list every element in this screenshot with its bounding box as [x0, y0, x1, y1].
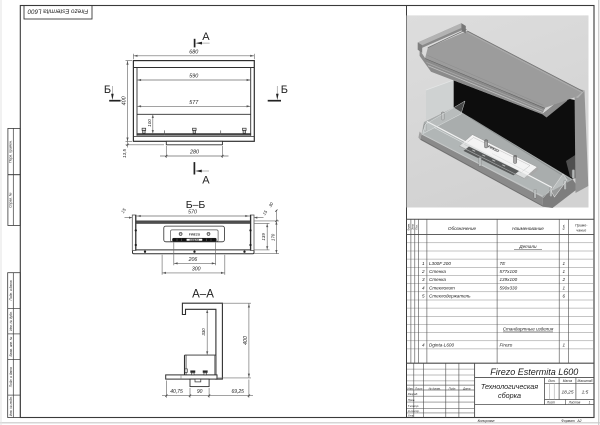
svg-text:30: 30 [268, 201, 275, 208]
svg-text:400: 400 [122, 96, 128, 105]
svg-text:2: 2 [421, 269, 425, 274]
svg-text:206: 206 [188, 257, 198, 263]
svg-text:Б: Б [281, 84, 288, 96]
svg-text:6: 6 [563, 294, 566, 299]
svg-text:680: 680 [189, 50, 198, 56]
svg-text:Дата: Дата [462, 386, 471, 390]
svg-text:FIREZO: FIREZO [189, 232, 201, 236]
svg-text:Утв.: Утв. [408, 414, 415, 418]
svg-text:Инв. № подл.: Инв. № подл. [9, 396, 13, 416]
svg-text:Обозначение: Обозначение [448, 226, 477, 231]
svg-text:15: 15 [262, 209, 269, 216]
svg-text:Стенка: Стенка [429, 277, 446, 282]
svg-text:Справ. №: Справ. № [9, 192, 13, 208]
svg-text:Firezo: Firezo [500, 343, 513, 348]
svg-text:Форм.: Форм. [407, 223, 411, 231]
svg-text:330: 330 [201, 328, 206, 336]
svg-text:18,25: 18,25 [561, 390, 573, 396]
svg-text:3: 3 [422, 277, 425, 282]
svg-text:Лит.: Лит. [547, 379, 556, 383]
svg-text:1: 1 [563, 261, 566, 266]
svg-text:Лист: Лист [546, 400, 556, 404]
svg-text:5: 5 [422, 294, 425, 299]
svg-text:Стеклодержатель: Стеклодержатель [429, 294, 471, 299]
svg-text:90: 90 [197, 389, 203, 395]
svg-text:Подп.: Подп. [449, 386, 457, 390]
svg-text:1: 1 [563, 269, 566, 274]
svg-text:Firezo Estermita L600: Firezo Estermita L600 [490, 367, 578, 377]
svg-text:чание: чание [576, 229, 586, 233]
svg-text:100: 100 [147, 119, 152, 127]
svg-text:Разраб.: Разраб. [408, 392, 418, 396]
svg-text:40,75: 40,75 [170, 389, 183, 395]
svg-text:15: 15 [120, 207, 127, 214]
svg-text:570: 570 [188, 210, 197, 216]
svg-text:69,25: 69,25 [231, 389, 244, 395]
svg-text:Подп. и дата: Подп. и дата [9, 367, 13, 387]
svg-text:А–А: А–А [192, 289, 214, 301]
svg-text:590: 590 [189, 74, 198, 80]
svg-text:Изм.: Изм. [407, 386, 413, 390]
svg-text:1: 1 [589, 400, 591, 404]
svg-text:ТЕ: ТЕ [500, 261, 507, 266]
svg-text:Пров.: Пров. [408, 398, 416, 402]
svg-text:139х100: 139х100 [500, 277, 518, 282]
svg-text:Копировал: Копировал [478, 419, 495, 423]
svg-text:Перв. примен.: Перв. примен. [9, 140, 13, 163]
svg-text:Подп. и дата: Подп. и дата [9, 280, 13, 300]
svg-text:Стеклолит: Стеклолит [429, 285, 455, 290]
svg-text:139: 139 [261, 233, 266, 241]
svg-text:Взам. инв. №: Взам. инв. № [9, 336, 13, 356]
svg-text:1:5: 1:5 [582, 390, 589, 396]
svg-text:Лист: Лист [414, 386, 423, 390]
svg-text:577: 577 [189, 100, 199, 106]
svg-text:170: 170 [270, 233, 275, 241]
svg-text:280: 280 [189, 150, 199, 156]
svg-text:Формат: Формат [561, 419, 575, 423]
svg-text:А2: А2 [576, 419, 581, 423]
svg-text:Масштаб: Масштаб [578, 379, 593, 383]
svg-text:L300F 200: L300F 200 [429, 261, 451, 266]
svg-text:Стенка: Стенка [429, 269, 446, 274]
svg-text:Масса: Масса [563, 379, 573, 383]
svg-text:№ докум.: № докум. [429, 386, 442, 390]
svg-text:577х100: 577х100 [500, 269, 518, 274]
svg-text:FIREZO: FIREZO [190, 238, 200, 242]
svg-text:Листов: Листов [568, 400, 581, 404]
svg-text:4: 4 [422, 285, 425, 290]
svg-text:Технологическая: Технологическая [481, 382, 538, 391]
svg-text:Зона: Зона [410, 223, 414, 229]
svg-text:Детали: Детали [518, 244, 537, 249]
svg-text:А: А [202, 31, 210, 43]
svg-text:Кол.: Кол. [561, 224, 565, 230]
svg-text:Поз.: Поз. [414, 224, 418, 229]
svg-text:Т.контр.: Т.контр. [408, 404, 420, 408]
svg-text:1: 1 [563, 343, 566, 348]
svg-text:1: 1 [563, 285, 566, 290]
svg-text:Dginta-L600: Dginta-L600 [429, 343, 454, 348]
svg-text:Б: Б [104, 84, 111, 96]
svg-text:Firezo Estermita L600: Firezo Estermita L600 [27, 8, 88, 15]
svg-text:4: 4 [422, 343, 425, 348]
svg-text:Наименование: Наименование [512, 226, 544, 231]
svg-text:590х330: 590х330 [500, 285, 518, 290]
svg-text:Инв. № дубл.: Инв. № дубл. [9, 311, 13, 331]
svg-text:2: 2 [562, 277, 566, 282]
svg-text:400: 400 [243, 336, 249, 345]
svg-text:Стандартные изделия: Стандартные изделия [503, 327, 554, 332]
svg-text:А: А [202, 175, 210, 187]
svg-text:Приме-: Приме- [575, 224, 588, 228]
svg-text:Н.контр.: Н.контр. [408, 409, 420, 413]
svg-text:13,5: 13,5 [122, 149, 127, 158]
svg-text:300: 300 [192, 267, 201, 273]
svg-text:1: 1 [422, 261, 425, 266]
svg-text:сборка: сборка [498, 391, 521, 400]
